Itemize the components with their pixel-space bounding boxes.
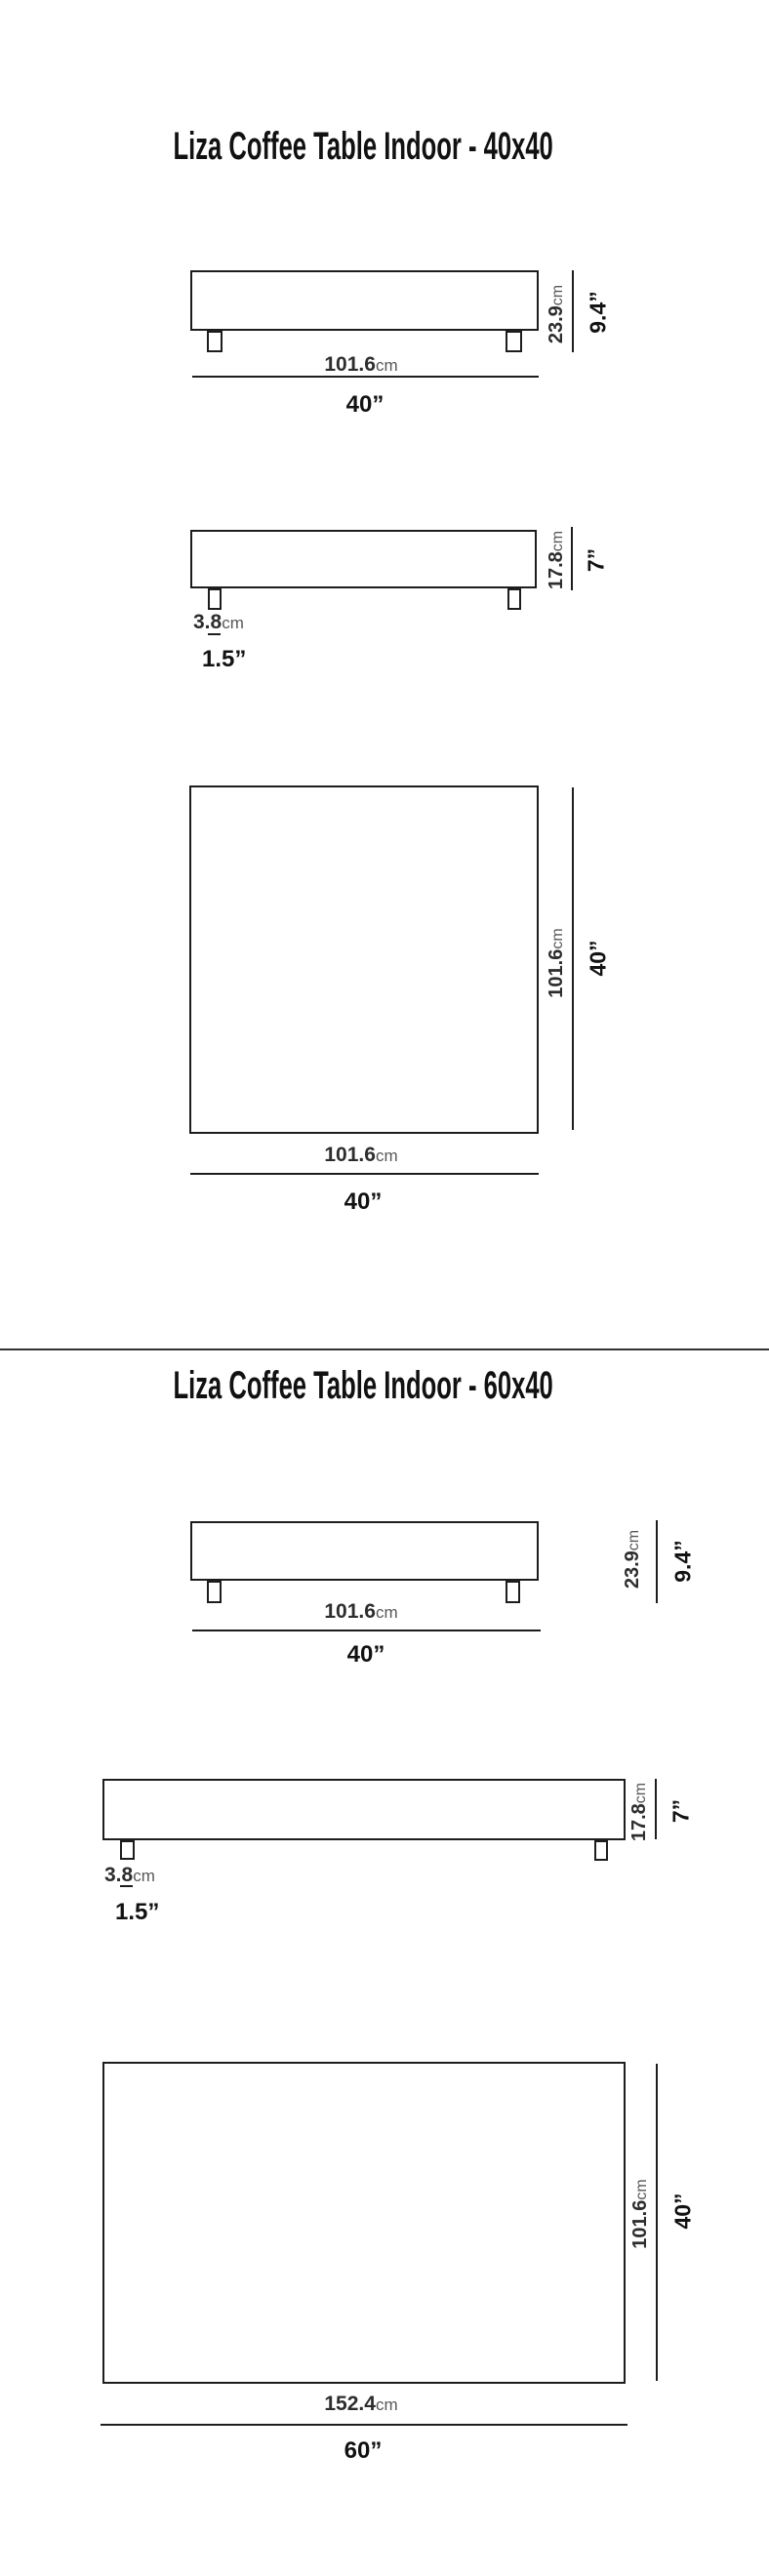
depth-dim-inch-label: 40”: [587, 940, 610, 976]
height-dim-line: [656, 1520, 658, 1603]
depth-cm-value: 101.6: [546, 949, 567, 998]
section-title: Liza Coffee Table Indoor - 60x40: [0, 1366, 726, 1405]
cm-unit: cm: [376, 1603, 398, 1622]
height-dim-cm-label: 23.9cm: [623, 1530, 642, 1589]
dimension-sheet: Liza Coffee Table Indoor - 40x40 23.9cm …: [0, 0, 769, 2576]
front-view-left-leg: [207, 331, 223, 352]
leg-width-dim-line: [120, 1885, 133, 1887]
plan-width-dim-cm-label: 152.4cm: [324, 2394, 397, 2414]
height-dim-cm-label: 23.9cm: [546, 285, 566, 343]
width-cm-value: 101.6: [324, 353, 376, 376]
body-height-cm-value: 17.8: [628, 1803, 650, 1841]
profile-view-left-leg: [208, 588, 222, 610]
depth-dim-inch-label: 40”: [672, 2193, 695, 2229]
plan-width-dim-inch-label: 40”: [344, 1190, 383, 1214]
height-dim-inch-label: 9.4”: [587, 291, 610, 333]
leg-width-cm-value: 3.8: [104, 1864, 133, 1886]
plan-width-dim-line: [101, 2424, 627, 2426]
top-view-outline: [189, 785, 539, 1134]
cm-unit: cm: [626, 1530, 642, 1550]
depth-cm-value: 101.6: [629, 2200, 651, 2249]
cm-unit: cm: [549, 531, 566, 551]
front-view-right-leg: [506, 1581, 520, 1603]
width-dim-line: [192, 376, 539, 378]
section-title-text: Liza Coffee Table Indoor - 40x40: [173, 127, 552, 166]
cm-unit: cm: [376, 1147, 398, 1165]
section-divider: [0, 1348, 769, 1350]
front-view-outline: [190, 270, 539, 331]
leg-width-inch-label: 1.5”: [202, 648, 246, 671]
profile-view-outline: [190, 530, 537, 588]
body-height-dim-inch-label: 7”: [586, 548, 608, 572]
profile-view-outline: [102, 1779, 626, 1840]
cm-unit: cm: [549, 928, 566, 948]
width-dim-cm-label: 101.6cm: [324, 1601, 397, 1622]
body-height-dim-cm-label: 17.8cm: [546, 531, 566, 589]
profile-view-right-leg: [594, 1840, 608, 1861]
body-height-dim-inch-label: 7”: [670, 1799, 693, 1823]
cm-unit: cm: [376, 2395, 398, 2414]
section-title: Liza Coffee Table Indoor - 40x40: [0, 127, 726, 166]
height-dim-inch-label: 9.4”: [672, 1540, 695, 1582]
width-dim-inch-label: 40”: [346, 393, 384, 417]
body-height-dim-cm-label: 17.8cm: [629, 1783, 649, 1841]
cm-unit: cm: [632, 1783, 649, 1803]
leg-width-dim-line: [208, 633, 221, 635]
depth-dim-line: [572, 787, 574, 1130]
leg-width-cm-value: 3.8: [193, 611, 222, 633]
depth-dim-line: [656, 2064, 658, 2381]
cm-unit: cm: [222, 614, 244, 632]
cm-unit: cm: [133, 1867, 155, 1885]
profile-view-right-leg: [507, 588, 521, 610]
profile-view-left-leg: [120, 1840, 135, 1860]
front-view-right-leg: [506, 331, 522, 352]
body-height-dim-line: [571, 527, 573, 590]
plan-width-dim-line: [190, 1173, 539, 1175]
height-dim-line: [572, 270, 574, 352]
front-view-left-leg: [207, 1581, 222, 1603]
top-view-outline: [102, 2062, 626, 2384]
cm-unit: cm: [549, 285, 566, 305]
height-cm-value: 23.9: [622, 1550, 643, 1589]
width-dim-line: [192, 1630, 541, 1631]
body-height-dim-line: [655, 1779, 657, 1839]
width-dim-cm-label: 101.6cm: [324, 354, 397, 375]
width-cm-value: 101.6: [324, 1600, 376, 1623]
plan-width-dim-cm-label: 101.6cm: [324, 1145, 397, 1165]
section-title-text: Liza Coffee Table Indoor - 60x40: [173, 1366, 552, 1405]
plan-width-cm-value: 101.6: [324, 1144, 376, 1166]
height-cm-value: 23.9: [546, 305, 567, 343]
front-view-outline: [190, 1521, 539, 1581]
leg-width-cm-label: 3.8cm: [104, 1865, 155, 1885]
leg-width-inch-label: 1.5”: [115, 1901, 159, 1924]
leg-width-cm-label: 3.8cm: [193, 612, 244, 632]
cm-unit: cm: [376, 356, 398, 375]
body-height-cm-value: 17.8: [546, 551, 567, 589]
plan-width-dim-inch-label: 60”: [344, 2439, 383, 2463]
plan-width-cm-value: 152.4: [324, 2393, 376, 2415]
cm-unit: cm: [633, 2179, 650, 2199]
depth-dim-cm-label: 101.6cm: [630, 2179, 650, 2248]
width-dim-inch-label: 40”: [347, 1643, 385, 1667]
depth-dim-cm-label: 101.6cm: [546, 928, 566, 997]
